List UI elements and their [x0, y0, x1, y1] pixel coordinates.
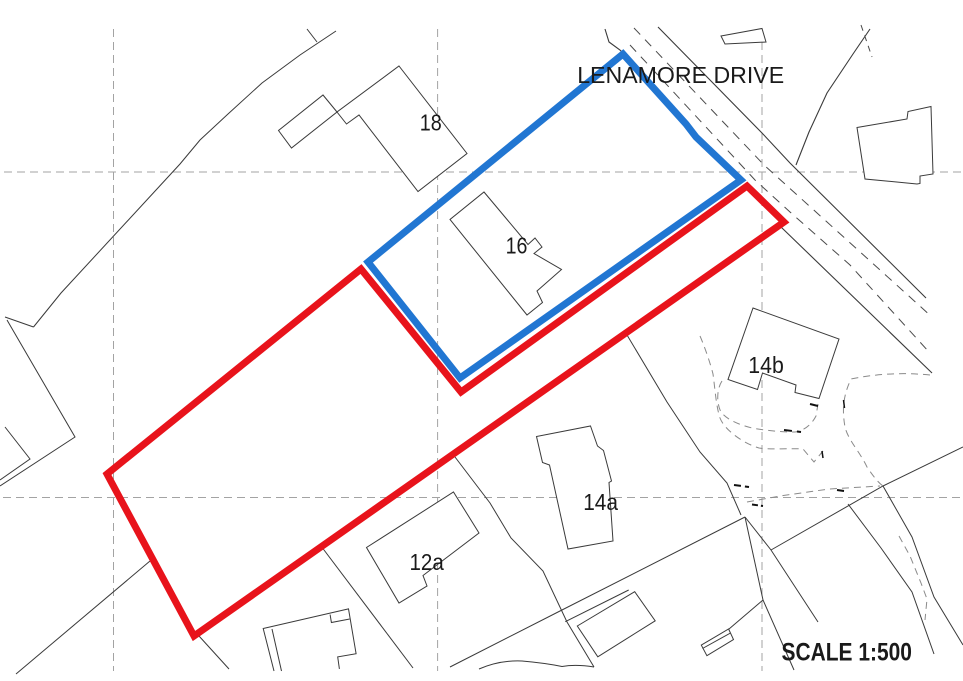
- svg-text:18: 18: [420, 109, 442, 135]
- svg-text:14b: 14b: [748, 352, 784, 378]
- svg-text:SCALE 1:500: SCALE 1:500: [782, 639, 912, 667]
- svg-text:16: 16: [506, 232, 528, 258]
- svg-text:12a: 12a: [410, 549, 445, 575]
- svg-text:14a: 14a: [583, 489, 619, 515]
- svg-text:LENAMORE DRIVE: LENAMORE DRIVE: [577, 62, 784, 88]
